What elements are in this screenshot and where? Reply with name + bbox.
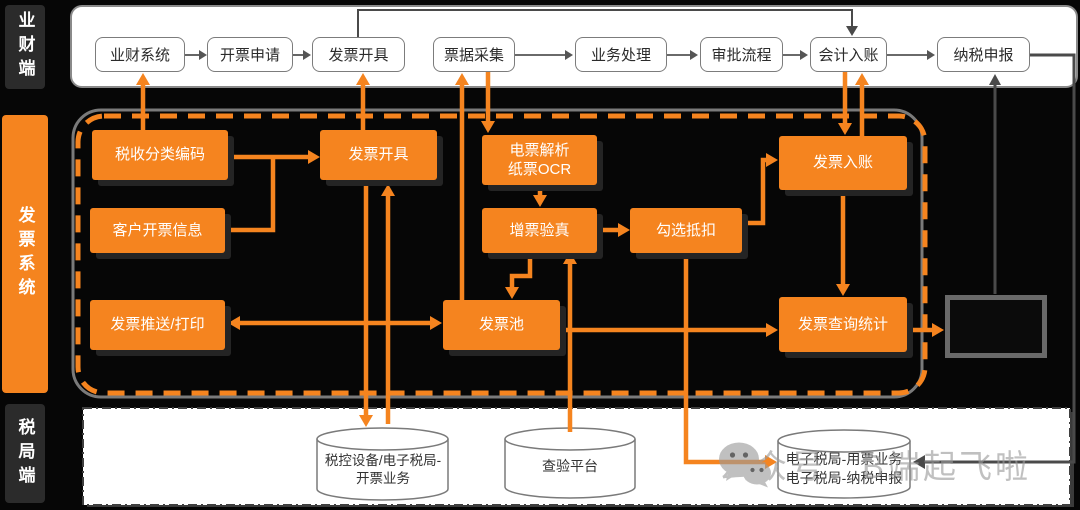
box-invoice-issue-mid: 发票开具 xyxy=(320,130,437,180)
box-eticket-parse-ocr: 电票解析 纸票OCR xyxy=(482,135,597,185)
box-invoice-query-stats: 发票查询统计 xyxy=(779,297,907,352)
box-customer-invoice-info: 客户开票信息 xyxy=(90,208,225,253)
box-vat-verify: 增票验真 xyxy=(482,208,597,253)
wechat-icon xyxy=(718,440,772,488)
eticket-parse-line1: 电票解析 xyxy=(509,141,569,161)
box-tax-classification-code: 税收分类编码 xyxy=(92,130,228,180)
cylinder-tax-device-line1: 税控设备/电子税局- xyxy=(313,452,453,470)
diagram-canvas: 业财端 发票系统 税局端 业财系统 开票申请 发票开具 票据采集 业务处理 审批… xyxy=(0,0,1080,510)
lane-label-business-finance: 业财端 xyxy=(5,5,45,89)
eticket-parse-line2: 纸票OCR xyxy=(508,160,571,180)
top-box-accounting-entry: 会计入账 xyxy=(810,37,887,72)
cylinder-tax-device-label: 税控设备/电子税局- 开票业务 xyxy=(313,452,453,488)
tax-bureau-dark-box xyxy=(945,295,1047,358)
lane-label-invoice-system: 发票系统 xyxy=(2,115,48,393)
lane-label-tax-bureau: 税局端 xyxy=(5,404,45,503)
cylinder-tax-device-line2: 开票业务 xyxy=(313,470,453,488)
top-box-tax-declaration: 纳税申报 xyxy=(937,37,1030,72)
box-invoice-pool: 发票池 xyxy=(443,300,560,350)
box-deduction-select: 勾选抵扣 xyxy=(630,208,742,253)
top-box-business-process: 业务处理 xyxy=(575,37,667,72)
top-box-ticket-collect: 票据采集 xyxy=(433,37,515,72)
connector-layer xyxy=(0,0,1080,510)
top-box-business-finance-system: 业财系统 xyxy=(95,37,185,72)
box-invoice-push-print: 发票推送/打印 xyxy=(90,300,225,350)
top-box-approval-flow: 审批流程 xyxy=(700,37,783,72)
gray-arrowheads xyxy=(199,26,1001,469)
box-invoice-entry: 发票入账 xyxy=(779,136,907,190)
cylinder-verify-platform-label: 查验平台 xyxy=(505,457,635,476)
watermark: 公众号：B端起飞啦 xyxy=(718,440,1031,488)
orange-connectors xyxy=(143,72,933,462)
top-box-invoice-issue: 发票开具 xyxy=(312,37,405,72)
top-box-invoice-request: 开票申请 xyxy=(207,37,293,72)
